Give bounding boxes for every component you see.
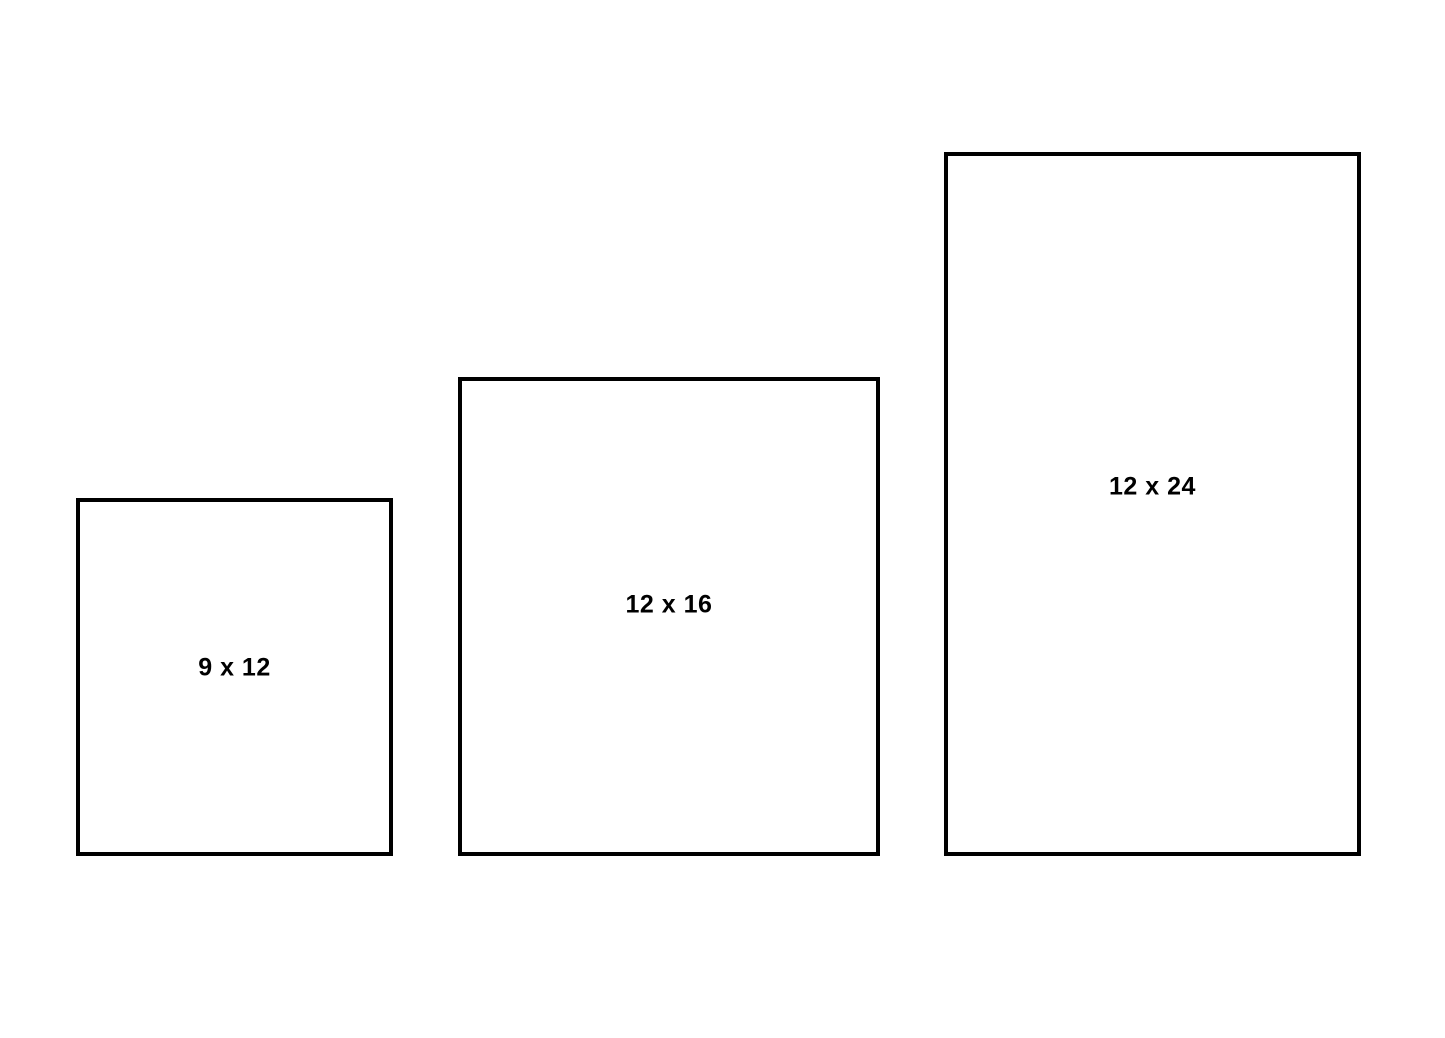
size-box-12x16: 12 x 16 <box>458 377 880 856</box>
size-box-9x12: 9 x 12 <box>76 498 393 856</box>
size-label-12x24: 12 x 24 <box>948 472 1357 501</box>
size-comparison-diagram: 9 x 12 12 x 16 12 x 24 <box>0 0 1445 1038</box>
size-box-12x24: 12 x 24 <box>944 152 1361 856</box>
size-label-12x16: 12 x 16 <box>462 590 876 619</box>
size-label-9x12: 9 x 12 <box>80 654 389 683</box>
